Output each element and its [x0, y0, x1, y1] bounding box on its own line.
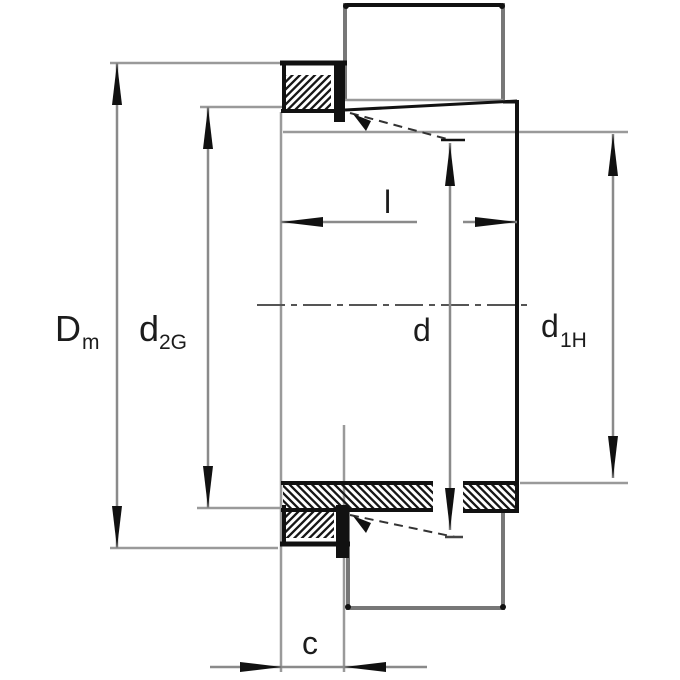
nut-right-face-bar	[336, 505, 349, 558]
nut-right-face-bar	[334, 61, 345, 122]
dimension-arrowheads	[112, 63, 618, 672]
sleeve-section-hatch-left	[283, 483, 433, 510]
taper-arrowhead-top	[353, 114, 371, 131]
drawing-canvas: D m d 2G l d d 1H c	[0, 0, 680, 680]
d2g-arrow-down	[203, 466, 213, 508]
c-arrow-left	[240, 662, 282, 672]
label-c: c	[302, 625, 318, 661]
dm-arrow-down	[112, 506, 122, 548]
dimension-lines	[117, 63, 613, 667]
adapter-sleeve	[281, 100, 519, 513]
label-dm-main: D	[55, 308, 81, 349]
label-dm-sub: m	[82, 331, 100, 354]
dimension-labels: D m d 2G l d d 1H c	[55, 184, 587, 661]
bearing-ring-top-outline	[343, 3, 505, 100]
adapter-sleeve-diagram: D m d 2G l d d 1H c	[0, 0, 680, 680]
d1h-arrow-up	[608, 134, 618, 176]
label-d: d	[413, 312, 431, 348]
corner-dot	[345, 604, 351, 610]
sleeve-section-hatch-right	[463, 483, 517, 510]
c-arrow-right	[344, 662, 386, 672]
d-arrow-down	[445, 488, 455, 530]
extension-lines	[110, 63, 628, 672]
d2g-arrow-up	[203, 107, 213, 149]
label-l: l	[384, 184, 391, 220]
label-d1h-sub: 1H	[560, 329, 587, 352]
d1h-arrow-down	[608, 436, 618, 478]
nut-section-hatch	[285, 512, 334, 538]
nut-section-hatch	[285, 75, 331, 111]
label-d2g-main: d	[139, 308, 159, 349]
lock-nut-top	[280, 61, 347, 122]
corner-dot	[499, 3, 505, 9]
l-arrow-left	[281, 217, 323, 227]
dm-arrow-up	[112, 63, 122, 105]
corner-dot	[343, 3, 349, 9]
sleeve-taper-edge	[345, 101, 517, 110]
label-d1h-main: d	[541, 308, 559, 344]
l-arrow-right	[475, 217, 517, 227]
corner-dot	[500, 604, 506, 610]
label-d2g-sub: 2G	[159, 331, 187, 354]
lock-nut-bottom	[280, 505, 350, 558]
d-arrow-up	[445, 144, 455, 186]
